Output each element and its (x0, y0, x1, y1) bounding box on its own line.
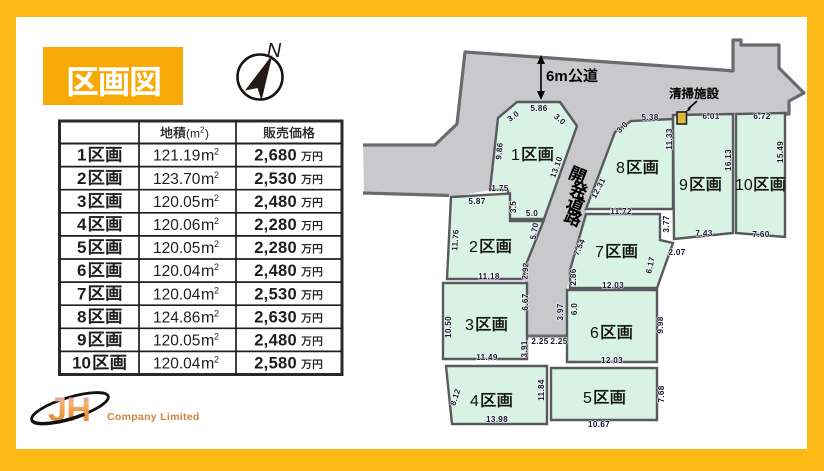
svg-text:2,280: 2,280 (254, 216, 297, 234)
svg-text:1: 1 (511, 147, 520, 164)
svg-text:120.05: 120.05 (153, 240, 200, 257)
svg-text:7.68: 7.68 (657, 385, 666, 402)
svg-text:2,280: 2,280 (254, 239, 297, 257)
svg-text:9: 9 (679, 177, 688, 194)
svg-text:2: 2 (469, 239, 478, 256)
svg-text:5: 5 (583, 390, 592, 407)
svg-text:9.98: 9.98 (656, 316, 665, 333)
svg-text:3.97: 3.97 (556, 303, 565, 320)
svg-text:6.67: 6.67 (521, 293, 530, 310)
svg-text:120.04: 120.04 (153, 286, 201, 303)
svg-text:2.92: 2.92 (521, 262, 531, 280)
svg-text:11.49: 11.49 (476, 353, 498, 362)
svg-text:2,530: 2,530 (254, 170, 297, 188)
svg-text:2: 2 (214, 170, 219, 180)
svg-text:2,530: 2,530 (254, 285, 297, 303)
svg-text:2,480: 2,480 (254, 332, 297, 350)
svg-text:m: m (201, 356, 214, 373)
svg-text:12.03: 12.03 (602, 281, 624, 290)
svg-text:10: 10 (735, 177, 753, 194)
svg-text:7.43: 7.43 (695, 229, 712, 238)
svg-text:5.86: 5.86 (530, 104, 547, 113)
svg-text:2: 2 (214, 262, 219, 272)
svg-text:5.87: 5.87 (468, 197, 485, 206)
svg-text:m: m (201, 217, 214, 234)
svg-text:3: 3 (77, 192, 86, 211)
svg-text:3.91: 3.91 (520, 340, 529, 357)
svg-text:m: m (201, 148, 214, 165)
svg-text:1.75: 1.75 (491, 184, 508, 193)
svg-text:8: 8 (77, 307, 86, 326)
svg-text:2.07: 2.07 (668, 248, 685, 257)
svg-text:5.0: 5.0 (526, 209, 538, 218)
svg-text:2.25: 2.25 (531, 337, 548, 346)
svg-text:2: 2 (214, 355, 219, 365)
svg-text:10: 10 (72, 354, 91, 373)
svg-text:12.03: 12.03 (601, 356, 623, 365)
svg-text:m: m (201, 286, 214, 303)
svg-text:m: m (201, 333, 214, 350)
svg-text:): ) (205, 127, 209, 141)
svg-text:121.19: 121.19 (153, 148, 200, 165)
svg-text:120.05: 120.05 (153, 194, 200, 211)
svg-text:9.86: 9.86 (494, 142, 505, 160)
svg-text:7: 7 (595, 244, 604, 261)
svg-text:(m: (m (186, 127, 200, 141)
svg-text:10.67: 10.67 (588, 420, 610, 429)
svg-text:1: 1 (77, 146, 86, 165)
svg-text:120.05: 120.05 (153, 333, 200, 350)
svg-text:13.98: 13.98 (486, 415, 508, 424)
svg-text:15.49: 15.49 (776, 141, 785, 163)
svg-text:2,680: 2,680 (254, 147, 297, 165)
svg-text:2: 2 (214, 332, 219, 342)
svg-text:5.38: 5.38 (641, 113, 658, 122)
svg-text:123.70: 123.70 (153, 171, 201, 188)
svg-text:2: 2 (214, 285, 219, 295)
svg-text:4: 4 (77, 215, 87, 234)
svg-text:N: N (267, 40, 282, 62)
svg-text:2,480: 2,480 (254, 193, 297, 211)
svg-text:2: 2 (214, 216, 219, 226)
svg-text:m: m (201, 309, 214, 326)
svg-text:m: m (201, 240, 214, 257)
svg-text:11.33: 11.33 (665, 128, 674, 150)
svg-text:6: 6 (77, 261, 86, 280)
svg-text:6.01: 6.01 (702, 112, 719, 121)
svg-text:16.13: 16.13 (724, 149, 733, 171)
svg-text:11.18: 11.18 (478, 272, 500, 281)
svg-text:8: 8 (616, 160, 625, 177)
svg-text:2: 2 (214, 193, 219, 203)
svg-text:10.50: 10.50 (444, 316, 453, 338)
svg-text:3.77: 3.77 (662, 215, 671, 232)
svg-text:5: 5 (77, 238, 86, 257)
svg-text:3.5: 3.5 (509, 201, 518, 213)
svg-text:2.86: 2.86 (569, 268, 578, 285)
svg-text:2.25: 2.25 (550, 337, 567, 346)
svg-text:6m: 6m (546, 68, 568, 85)
svg-text:m: m (201, 171, 214, 188)
svg-text:2: 2 (77, 169, 86, 188)
svg-text:7: 7 (77, 284, 86, 303)
svg-text:120.04: 120.04 (153, 356, 201, 373)
svg-text:11.72: 11.72 (610, 207, 632, 216)
svg-text:2,480: 2,480 (254, 262, 297, 280)
svg-text:124.86: 124.86 (153, 309, 200, 326)
svg-text:6: 6 (590, 325, 599, 342)
svg-text:6.0: 6.0 (570, 303, 579, 315)
svg-text:2,630: 2,630 (254, 308, 297, 326)
svg-text:2: 2 (214, 308, 219, 318)
svg-text:m: m (201, 263, 214, 280)
svg-text:11.76: 11.76 (450, 229, 460, 251)
svg-text:7.60: 7.60 (752, 230, 769, 239)
svg-text:120.06: 120.06 (153, 217, 200, 234)
svg-text:2: 2 (214, 239, 219, 249)
svg-text:120.04: 120.04 (153, 263, 201, 280)
svg-text:3: 3 (465, 317, 474, 334)
svg-text:2,580: 2,580 (254, 355, 297, 373)
svg-text:9: 9 (77, 331, 86, 350)
svg-text:m: m (201, 194, 214, 211)
svg-text:Company Limited: Company Limited (107, 411, 200, 423)
svg-text:4: 4 (470, 393, 479, 410)
svg-text:6.72: 6.72 (753, 112, 770, 121)
svg-text:11.84: 11.84 (537, 379, 546, 401)
svg-text:2: 2 (214, 147, 219, 157)
